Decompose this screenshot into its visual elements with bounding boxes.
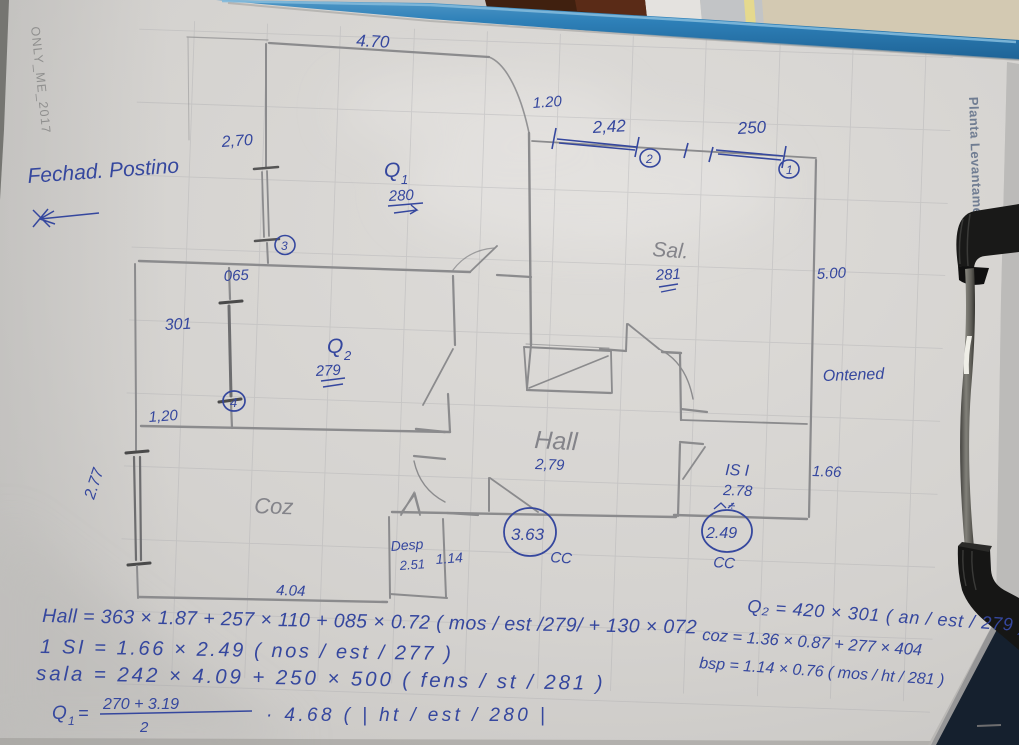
svg-text:Desp: Desp — [390, 536, 424, 554]
svg-text:CC: CC — [550, 549, 573, 567]
svg-text:2.49: 2.49 — [705, 525, 737, 542]
svg-text:1,20: 1,20 — [148, 407, 179, 426]
svg-text:270 + 3.19: 270 + 3.19 — [102, 696, 179, 713]
svg-text:2,42: 2,42 — [591, 116, 627, 137]
svg-text:1.20: 1.20 — [532, 93, 563, 112]
svg-text:=: = — [78, 703, 89, 723]
svg-text:2: 2 — [139, 719, 149, 736]
svg-text:4.70: 4.70 — [356, 31, 391, 52]
svg-text:1: 1 — [401, 172, 408, 187]
svg-text:Q: Q — [384, 159, 400, 182]
svg-text:Ontened: Ontened — [823, 366, 886, 385]
svg-text:4.04: 4.04 — [276, 582, 306, 600]
svg-text:281: 281 — [654, 266, 681, 284]
svg-text:279: 279 — [314, 362, 342, 380]
svg-text:· 4.68 ( | ht / est / 280 |: · 4.68 ( | ht / est / 280 | — [266, 705, 548, 726]
svg-text:1: 1 — [68, 714, 75, 728]
svg-text:CC: CC — [713, 554, 736, 572]
svg-text:IS I: IS I — [725, 462, 750, 480]
svg-text:3: 3 — [281, 239, 288, 253]
svg-text:5.00: 5.00 — [816, 264, 847, 283]
svg-text:Coz: Coz — [254, 493, 294, 519]
svg-text:Hall: Hall — [534, 426, 580, 456]
svg-text:3.63: 3.63 — [511, 525, 545, 544]
svg-text:Q: Q — [52, 703, 67, 724]
svg-text:1.66: 1.66 — [812, 463, 842, 481]
svg-text:065: 065 — [223, 267, 250, 285]
svg-text:2.51: 2.51 — [398, 556, 425, 573]
svg-text:250: 250 — [736, 118, 767, 139]
svg-text:2: 2 — [645, 152, 653, 166]
svg-text:2,70: 2,70 — [220, 132, 253, 151]
svg-text:4: 4 — [230, 395, 237, 410]
svg-text:2: 2 — [343, 348, 352, 363]
svg-text:280: 280 — [387, 187, 415, 205]
svg-text:1.14: 1.14 — [435, 549, 464, 567]
svg-text:Sal.: Sal. — [652, 238, 690, 263]
svg-text:2.78: 2.78 — [722, 482, 753, 500]
svg-text:2,79: 2,79 — [534, 456, 565, 474]
svg-text:1: 1 — [786, 163, 793, 177]
svg-text:Q: Q — [327, 335, 343, 358]
svg-text:301: 301 — [164, 316, 192, 334]
